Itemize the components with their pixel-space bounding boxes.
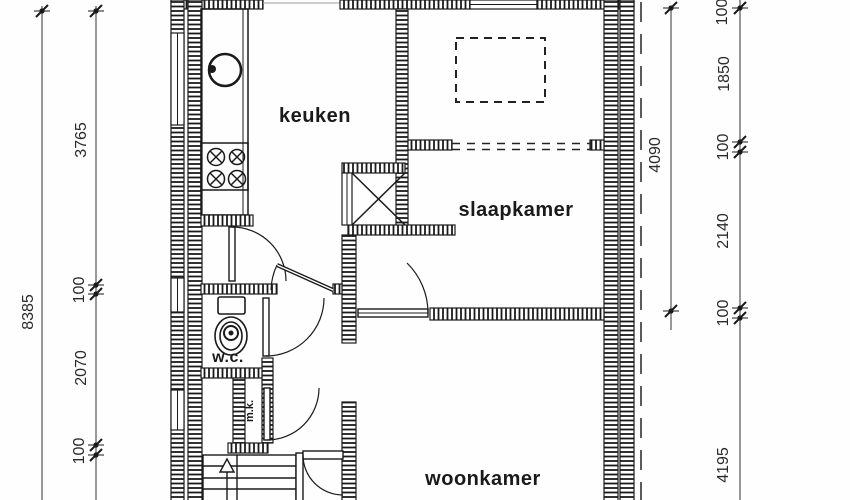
wall-wc-bottom [201,368,262,378]
dim-label-100-right-low: 100 [715,300,732,327]
dim-label-100-right-top: 100 [714,0,731,25]
room-label-keuken: keuken [279,105,351,127]
wall-mk-bottom [228,443,268,453]
wall-right-inner [604,0,618,500]
door-wc [263,298,324,356]
wall-wc-top [201,284,277,294]
wall-wc-top-stub [333,284,342,294]
dim-label-2070: 2070 [73,350,90,386]
dim-label-100-left-a: 100 [71,277,88,304]
room-label-woonkamer: woonkamer [424,468,541,490]
stairs-side-wall [296,453,303,500]
stove-icon [201,143,248,190]
beam-stub-right [590,140,604,150]
floorplan-canvas: keuken slaapkamer woonkamer w.c. m.k. 83… [0,0,850,500]
door-woonkamer [303,451,343,495]
wall-keuken-slaapkamer [396,9,408,235]
dim-label-1850: 1850 [716,56,733,92]
dim-label-4090: 4090 [647,137,664,173]
room-label-wc: w.c. [211,349,244,366]
dim-label-4195: 4195 [715,447,732,483]
wall-hall-lower [342,402,356,500]
beam-stub-left [408,140,452,150]
stairs [203,453,303,500]
skylight-dashed-rect [456,38,545,102]
dim-label-2140: 2140 [715,213,732,249]
wall-left-inner [188,0,202,500]
wall-top-left [171,0,263,9]
counter-end-stub [201,215,253,226]
shaft-top-wall [342,163,405,173]
room-label-mk: m.k. [244,400,256,422]
plan-svg: keuken slaapkamer woonkamer w.c. m.k. 83… [0,0,850,500]
sink-icon [208,54,241,86]
room-label-slaapkamer: slaapkamer [458,199,573,221]
shaft-bottom-wall [348,225,455,235]
door-keuken [229,227,286,281]
door-corridor [271,265,333,290]
dim-label-8385: 8385 [20,294,37,330]
toilet-icon [215,297,247,355]
dimension-lines [42,0,740,500]
beam-dashed-lines [452,144,590,150]
wall-top-mid [340,0,470,9]
dim-label-3765: 3765 [73,122,90,158]
wall-right-outer [620,0,634,500]
door-slaapkamer [358,263,428,317]
dim-label-100-left-b: 100 [71,438,88,465]
wall-slaap-woon [430,308,604,320]
kitchen-counter [201,9,253,226]
counter-outline [201,9,248,215]
wall-hall-upper [342,235,356,343]
dim-label-100-right-mid: 100 [715,134,732,161]
interior-walls [201,9,604,500]
